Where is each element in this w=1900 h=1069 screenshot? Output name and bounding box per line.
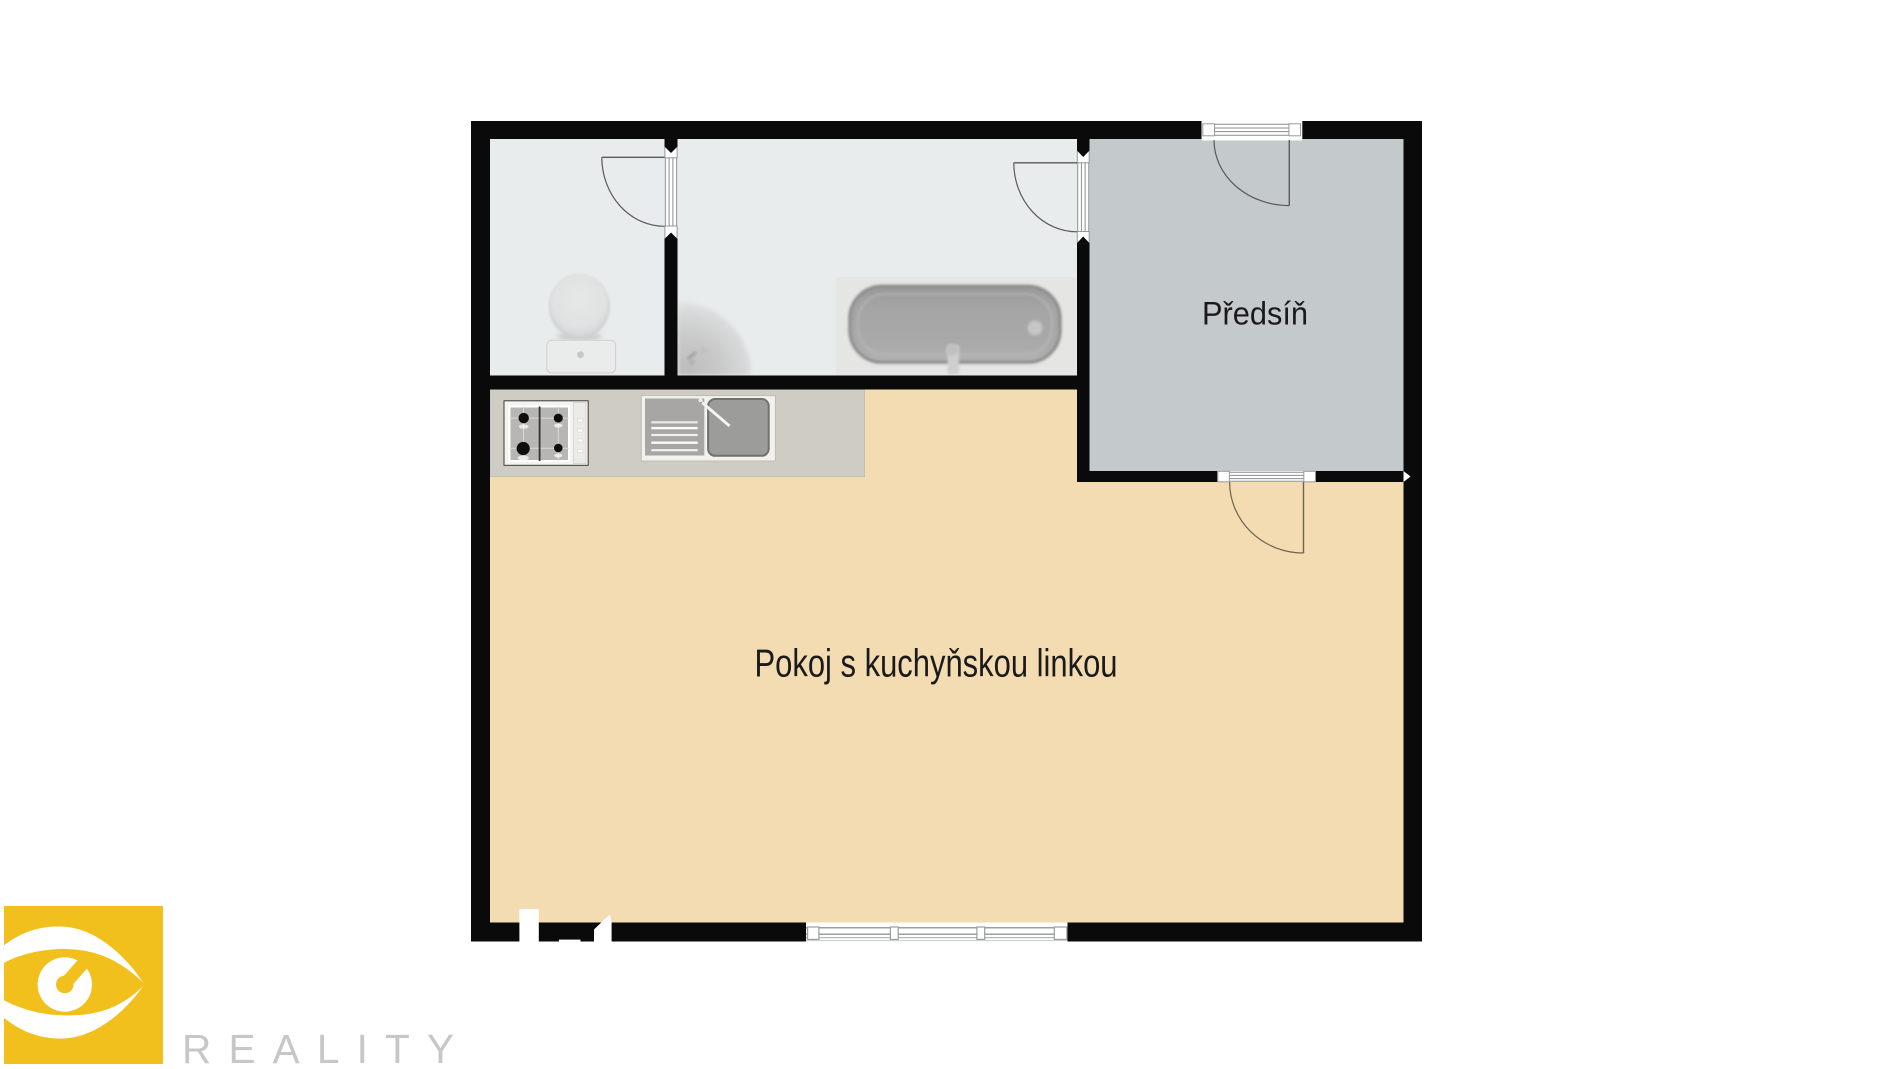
svg-text:REALITY: REALITY [182,1026,471,1069]
svg-text:Pokoj s kuchyňskou linkou: Pokoj s kuchyňskou linkou [755,643,1118,686]
svg-text:Předsíň: Předsíň [1202,296,1308,332]
